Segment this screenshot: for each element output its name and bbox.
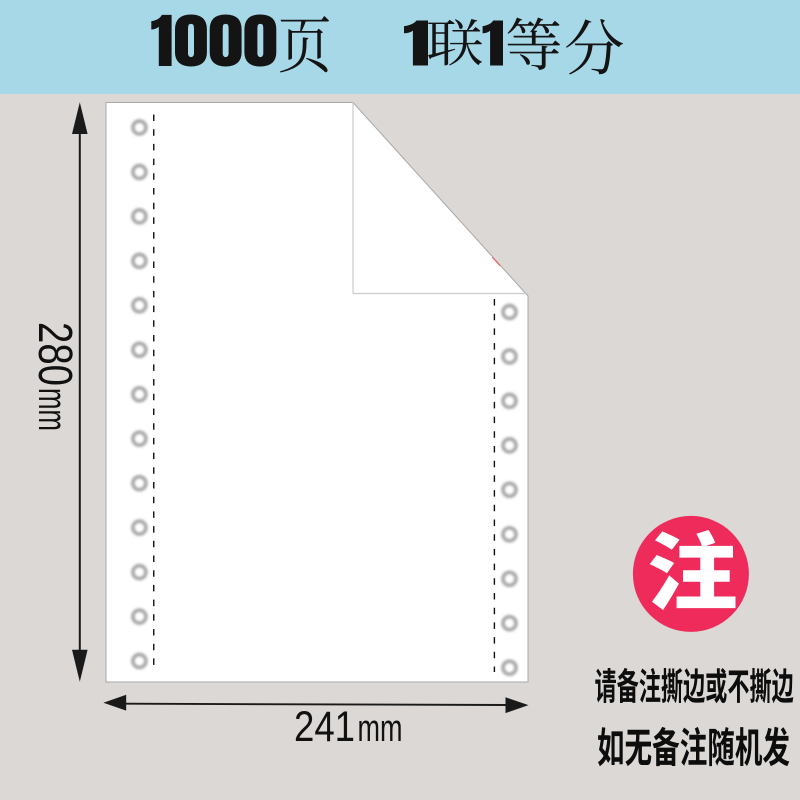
svg-text:280: 280 xyxy=(28,322,81,386)
svg-text:mm: mm xyxy=(29,388,73,431)
svg-text:mm: mm xyxy=(358,706,403,749)
svg-text:241: 241 xyxy=(294,703,355,750)
